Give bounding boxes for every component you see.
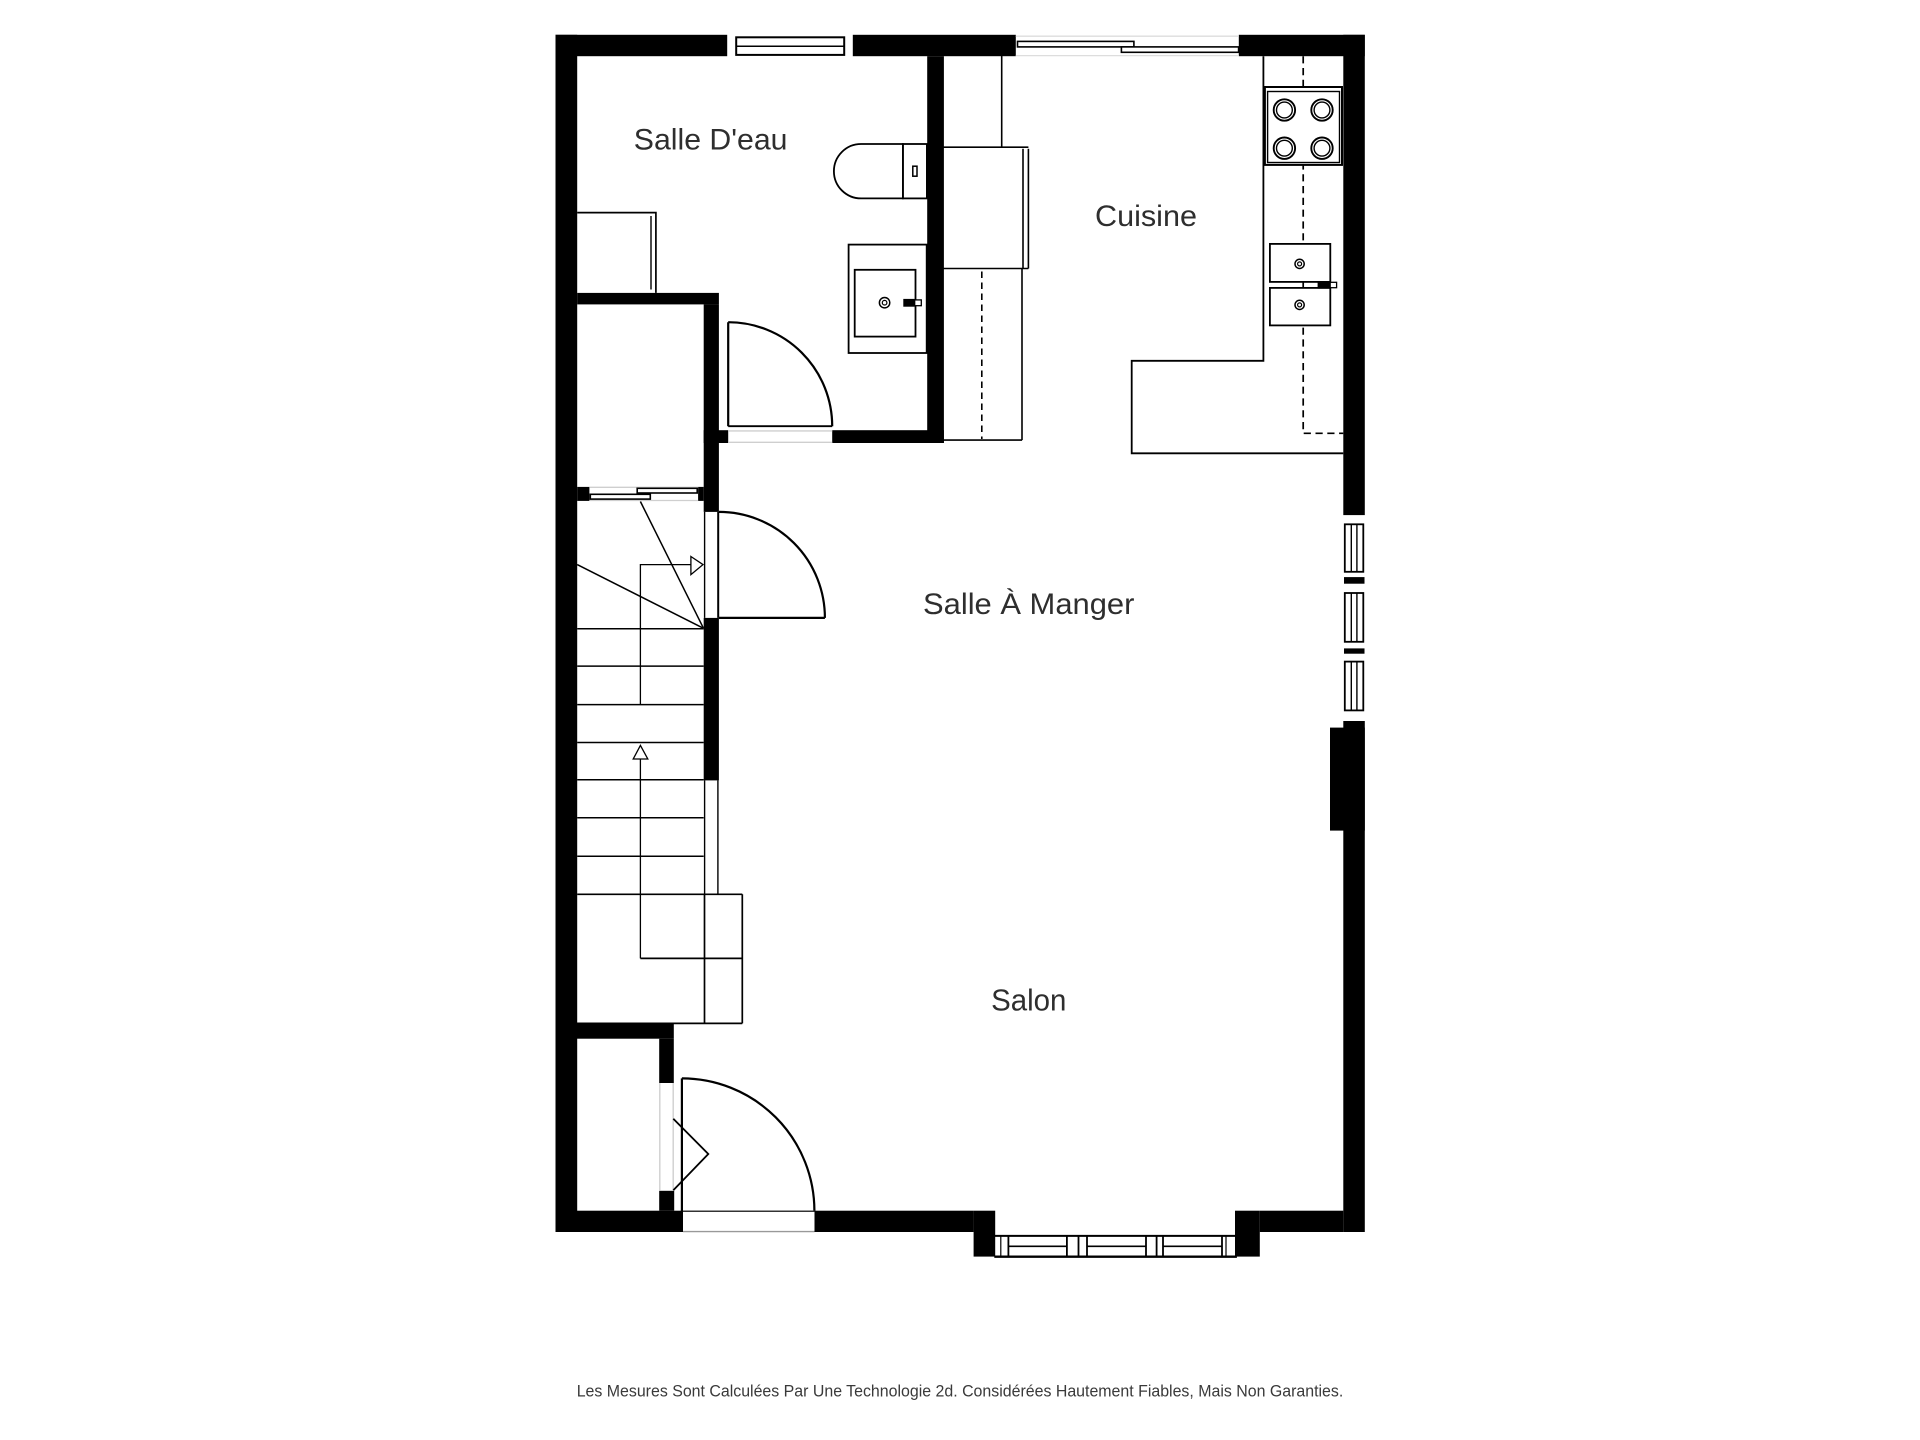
svg-text:Salon: Salon (991, 984, 1066, 1018)
svg-text:Salle À Manger: Salle À Manger (923, 588, 1134, 621)
svg-text:Salle D'eau: Salle D'eau (634, 123, 788, 156)
svg-text:Cuisine: Cuisine (1095, 200, 1197, 233)
svg-text:Les Mesures Sont Calculées Par: Les Mesures Sont Calculées Par Une Techn… (577, 1383, 1344, 1401)
